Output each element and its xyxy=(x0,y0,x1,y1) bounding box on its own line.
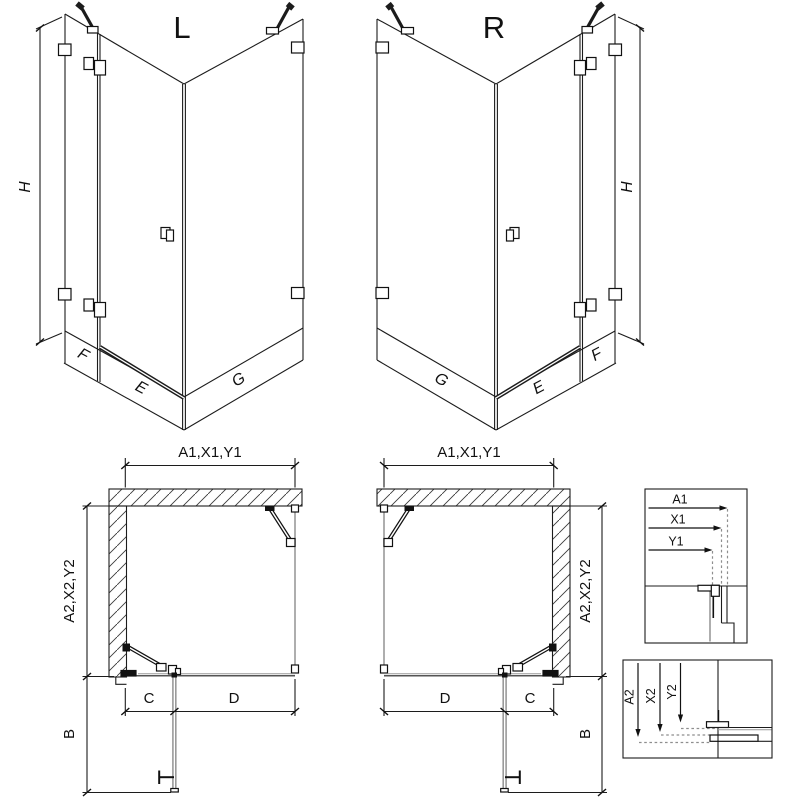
detail-a1-label: A1 xyxy=(672,493,687,507)
iso-view-right xyxy=(376,4,644,431)
plan-view-left xyxy=(83,458,303,796)
plan-right-side-dim: A2,X2,Y2 xyxy=(577,559,594,622)
detail-y2-label: Y2 xyxy=(665,684,679,699)
plan-view-right xyxy=(377,458,607,796)
plan-left-d-dim: D xyxy=(229,690,240,707)
dim-label-e-left: E xyxy=(132,378,150,398)
diagram-page: L H F E G R H F E G A1,X1,Y1 A2,X2,Y2 B … xyxy=(0,0,800,800)
dim-label-f-right: F xyxy=(589,345,607,365)
plan-left-b-dim: B xyxy=(61,729,78,739)
dim-label-e-right: E xyxy=(530,378,548,398)
detail-a2-label: A2 xyxy=(623,689,637,704)
detail-x2-label: X2 xyxy=(644,688,658,703)
variant-label-left: L xyxy=(173,10,190,45)
plan-right-b-dim: B xyxy=(577,729,594,739)
plan-left-side-dim: A2,X2,Y2 xyxy=(61,559,78,622)
detail-y1-label: Y1 xyxy=(668,535,683,549)
variant-label-right: R xyxy=(483,10,505,45)
iso-view-left xyxy=(36,4,304,431)
plan-left-top-dim: A1,X1,Y1 xyxy=(178,444,241,461)
detail-panel-depth-refs xyxy=(623,660,772,758)
detail-x1-label: X1 xyxy=(670,513,685,527)
dim-label-g-left: G xyxy=(229,370,248,391)
dim-label-f-left: F xyxy=(75,345,93,365)
detail-panel-width-refs xyxy=(645,489,747,643)
dim-label-h-left: H xyxy=(17,181,34,193)
technical-diagram: L H F E G R H F E G A1,X1,Y1 A2,X2,Y2 B … xyxy=(0,0,800,800)
plan-right-c-dim: C xyxy=(525,690,536,707)
plan-left-c-dim: C xyxy=(144,690,155,707)
plan-right-d-dim: D xyxy=(440,690,451,707)
dim-label-g-right: G xyxy=(432,370,451,391)
plan-right-top-dim: A1,X1,Y1 xyxy=(437,444,500,461)
dim-label-h-right: H xyxy=(619,181,636,193)
